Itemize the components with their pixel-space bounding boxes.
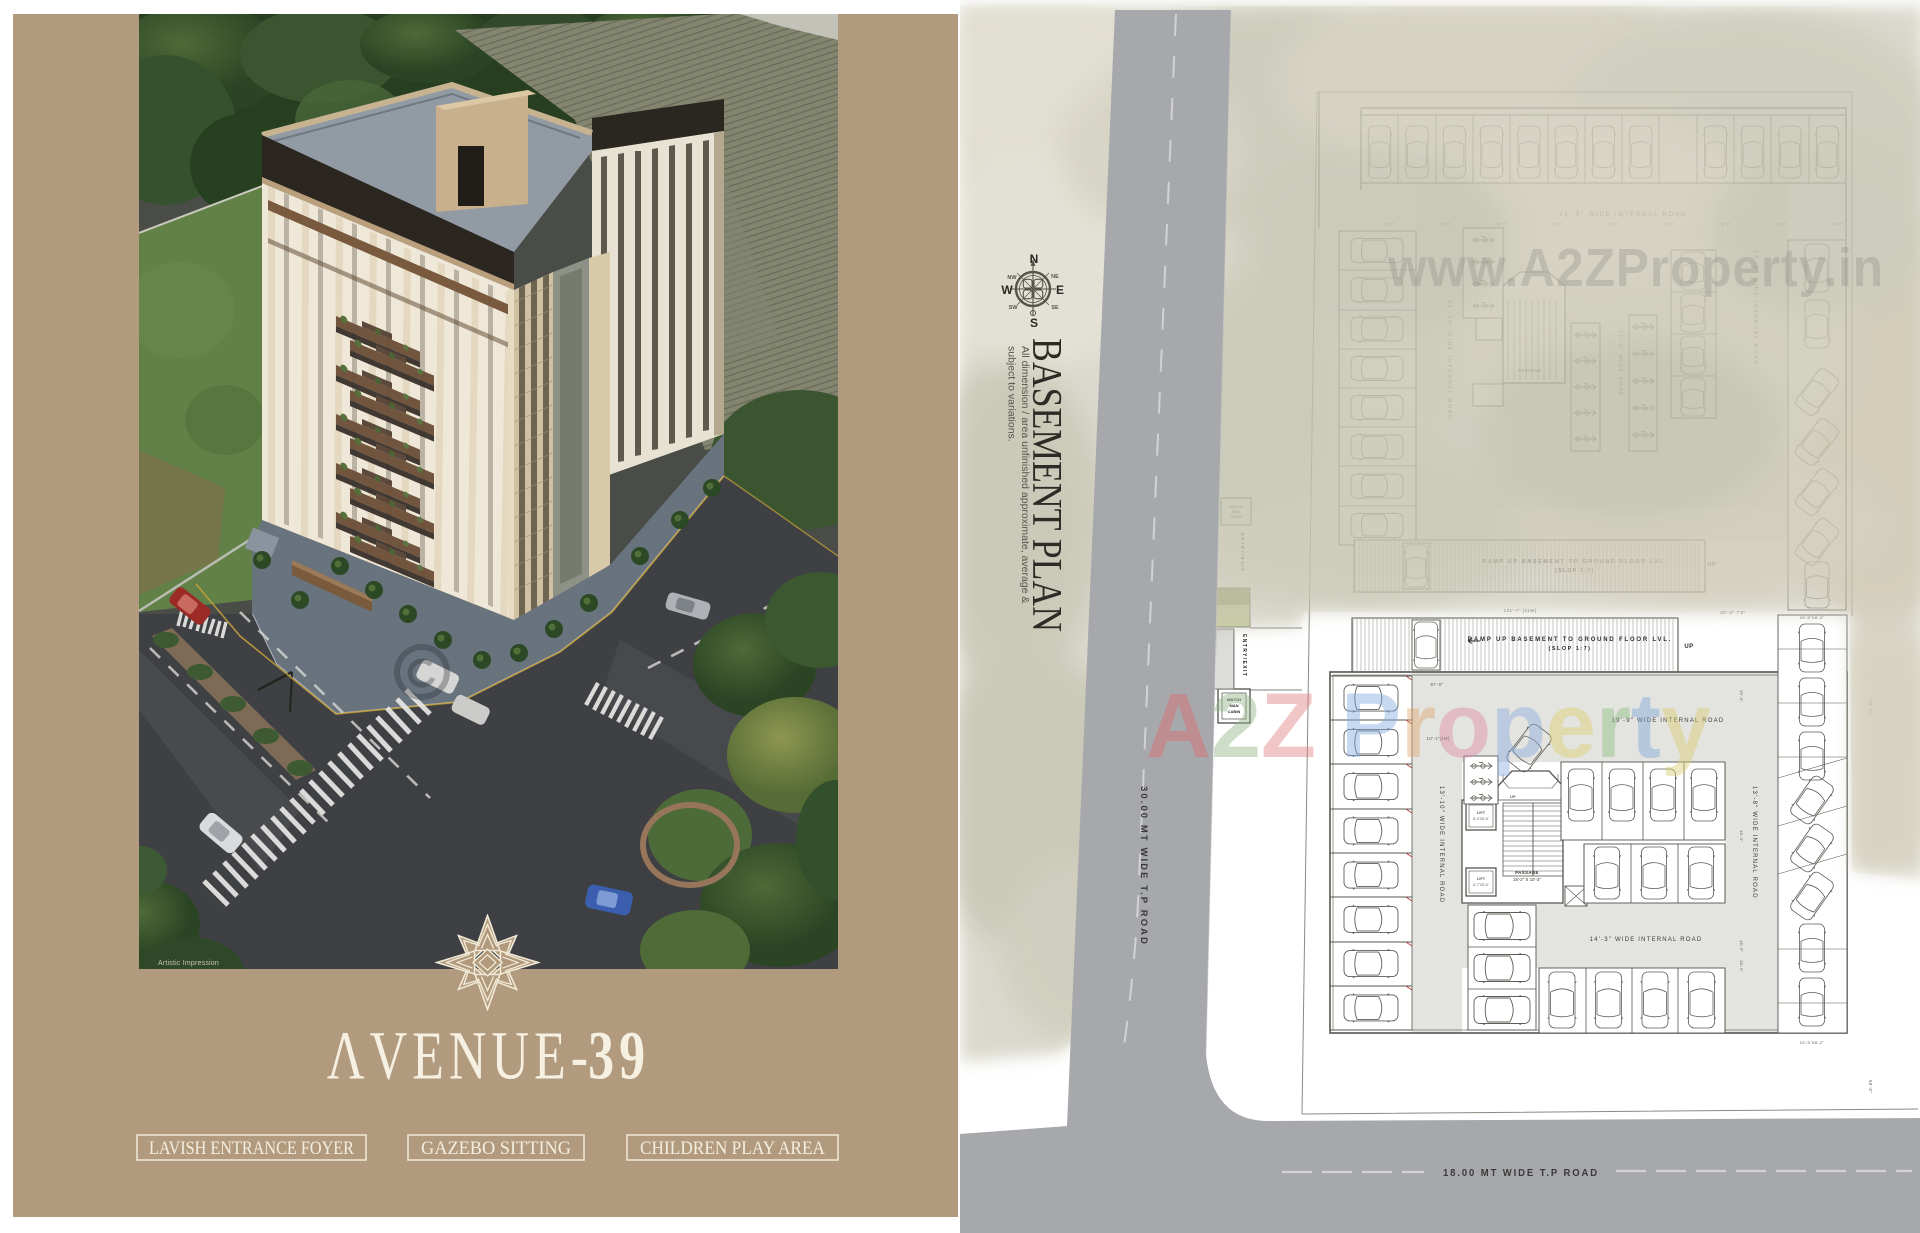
svg-text:16'-3": 16'-3" [1739, 690, 1744, 702]
svg-text:16'-3": 16'-3" [1739, 830, 1744, 842]
svg-text:NW: NW [1007, 275, 1017, 281]
svg-text:8'-0"X5'-6": 8'-0"X5'-6" [1473, 817, 1490, 821]
svg-text:S: S [1030, 316, 1038, 330]
svg-text:16'-3": 16'-3" [1739, 960, 1744, 972]
svg-text:19'-5"X8'-2": 19'-5"X8'-2" [1800, 615, 1825, 620]
svg-text:RAMP UP BASEMENT TO GROUND FLO: RAMP UP BASEMENT TO GROUND FLOOR LVL. [1468, 637, 1673, 643]
svg-text:(SLOP 1:7): (SLOP 1:7) [1548, 646, 1591, 652]
svg-text:E: E [1056, 283, 1064, 297]
svg-text:NE: NE [1051, 274, 1059, 280]
svg-text:N: N [1030, 252, 1039, 266]
svg-text:13'-8" WIDE INTERNAL ROAD: 13'-8" WIDE INTERNAL ROAD [1751, 786, 1757, 899]
svg-text:LIFT: LIFT [1477, 811, 1486, 815]
svg-text:www.A2ZProperty.in: www.A2ZProperty.in [1387, 238, 1884, 298]
svg-text:SW: SW [1009, 305, 1019, 311]
svg-text:16'-3": 16'-3" [1739, 940, 1744, 952]
svg-text:A2Z Property: A2Z Property [1146, 675, 1711, 777]
svg-text:UP: UP [1510, 795, 1516, 799]
svg-text:14'-3" WIDE INTERNAL ROAD: 14'-3" WIDE INTERNAL ROAD [1590, 937, 1703, 943]
svg-text:LAVISH ENTRANCE FOYER: LAVISH ENTRANCE FOYER [149, 1138, 354, 1159]
svg-text:UP: UP [1684, 644, 1693, 650]
svg-text:PASSAGE: PASSAGE [1515, 870, 1539, 875]
svg-text:6'-7"X5'-4": 6'-7"X5'-4" [1473, 883, 1490, 887]
svg-text:GAZEBO SITTING: GAZEBO SITTING [421, 1138, 571, 1159]
svg-text:ENTRY/EXIT: ENTRY/EXIT [1241, 634, 1247, 677]
svg-text:18.00 MT WIDE T.P ROAD: 18.00 MT WIDE T.P ROAD [1443, 1168, 1599, 1179]
svg-text:15'-2" X 10'-3": 15'-2" X 10'-3" [1513, 877, 1541, 882]
svg-text:50'-0": 50'-0" [1868, 1080, 1873, 1093]
svg-text:CHILDREN PLAY AREA: CHILDREN PLAY AREA [640, 1138, 825, 1159]
svg-text:LIFT: LIFT [1477, 877, 1486, 881]
svg-text:30.00 MT WIDE T.P ROAD: 30.00 MT WIDE T.P ROAD [1139, 786, 1149, 946]
svg-text:19'-5"X8'-2": 19'-5"X8'-2" [1800, 1040, 1825, 1045]
svg-text:13'-10" WIDE INTERNAL ROAD: 13'-10" WIDE INTERNAL ROAD [1438, 786, 1444, 903]
svg-text:SE: SE [1051, 305, 1059, 311]
svg-text:W: W [1001, 283, 1013, 297]
